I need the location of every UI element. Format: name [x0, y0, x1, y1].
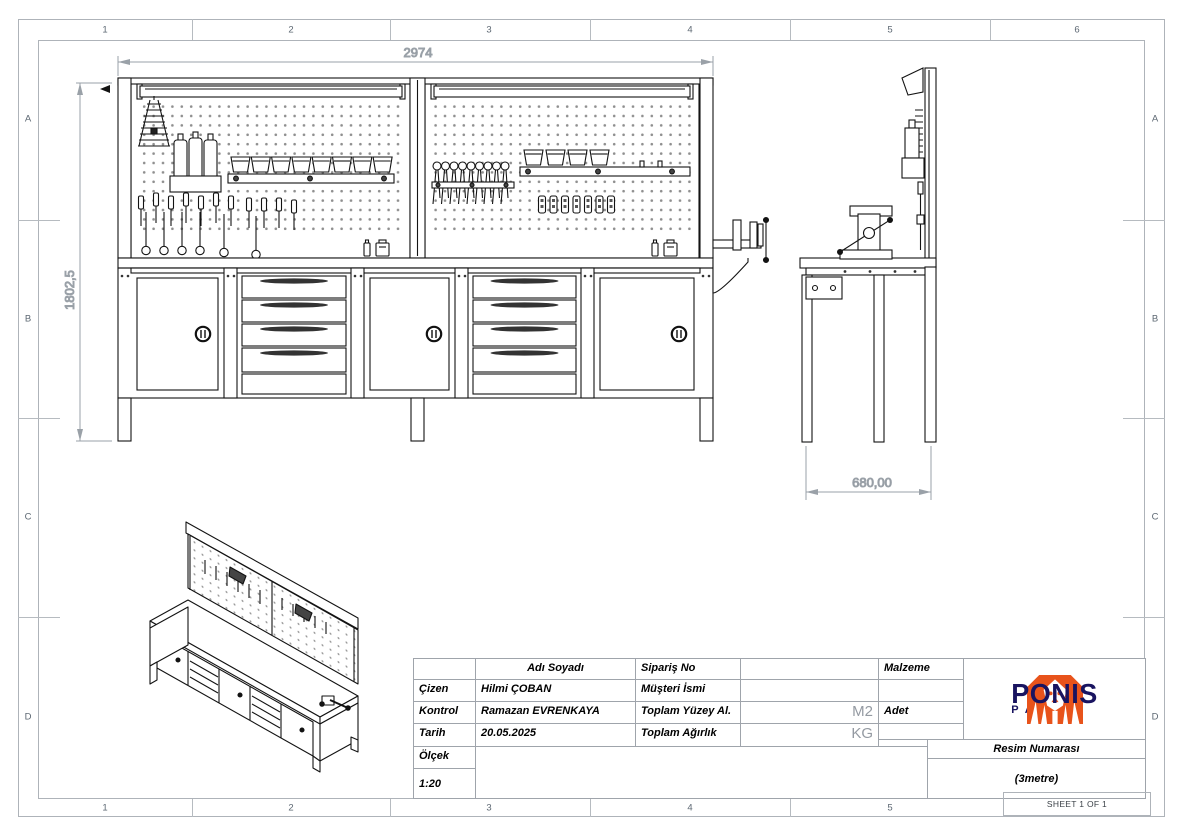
leg	[118, 398, 131, 441]
vise-front	[713, 218, 769, 294]
door-cabinet	[137, 278, 218, 390]
title-cell-yuzey-label: Toplam Yüzey Al.	[635, 701, 741, 724]
front-view-drawing: 2974 1802,5	[60, 35, 800, 505]
sheet-number-box: SHEET 1 OF 1	[1003, 792, 1151, 816]
title-cell-malzeme-value	[878, 679, 964, 702]
side-view-drawing: 680,00	[790, 40, 980, 510]
dimension-height: 1802,5	[62, 83, 112, 441]
zone-label-right-b: B	[1152, 314, 1158, 325]
title-cell-tarih-value: 20.05.2025	[475, 723, 636, 747]
isometric-view-drawing	[130, 515, 430, 815]
zone-divider	[18, 418, 60, 419]
zone-label-right-a: A	[1152, 114, 1158, 125]
svg-text:2974: 2974	[404, 45, 433, 60]
title-cell-cizen-label: Çizen	[413, 679, 476, 702]
zone-divider	[590, 799, 591, 817]
unit-kg: KG	[851, 727, 873, 740]
zone-divider	[18, 220, 60, 221]
title-cell-resim-label: Resim Numarası	[927, 739, 1146, 759]
zone-label-bottom-4: 4	[687, 803, 692, 814]
zone-label-right-c: C	[1152, 512, 1159, 523]
zone-divider	[1123, 617, 1165, 618]
drawer-cabinet	[242, 276, 346, 394]
zone-label-top-2: 2	[288, 25, 293, 36]
cad-drawing-sheet: 1 2 3 4 5 6 1 2 3 4 5 A B C D A B C D	[0, 0, 1187, 839]
title-cell-malzeme: Malzeme	[878, 658, 964, 680]
title-cell-notes	[475, 746, 928, 799]
leg	[874, 275, 884, 442]
leg	[700, 398, 713, 441]
dimension-width: 2974	[118, 45, 713, 76]
svg-text:680,00: 680,00	[852, 475, 892, 490]
title-cell-cizen-value: Hilmi ÇOBAN	[475, 679, 636, 702]
zone-label-top-4: 4	[687, 25, 692, 36]
zone-label-bottom-1: 1	[102, 803, 107, 814]
zone-label-top-5: 5	[887, 25, 892, 36]
zone-label-top-1: 1	[102, 25, 107, 36]
title-cell-yuzey-value: M2	[740, 701, 879, 724]
title-cell-adet: Adet	[878, 701, 964, 724]
light-fixture-left	[137, 84, 405, 99]
side-pegboard-profile	[902, 68, 936, 267]
dimension-depth: 680,00	[806, 446, 931, 500]
title-cell-siparis-value	[740, 658, 879, 680]
bench-base	[118, 258, 713, 441]
iso-workbench	[150, 522, 358, 772]
zone-label-left-a: A	[25, 114, 31, 125]
drawer-cabinet	[473, 276, 576, 394]
zone-label-top-6: 6	[1074, 25, 1079, 36]
light-fixture-right	[431, 84, 693, 99]
title-cell-siparis-label: Sipariş No	[635, 658, 741, 680]
clip-row	[539, 196, 615, 213]
zone-label-bottom-3: 3	[486, 803, 491, 814]
zone-label-top-3: 3	[486, 25, 491, 36]
title-cell-musteri-label: Müşteri İsmi	[635, 679, 741, 702]
leg	[925, 267, 936, 442]
zone-label-left-b: B	[25, 314, 31, 325]
unit-m2: M2	[852, 705, 873, 718]
datum-arrow	[100, 85, 110, 93]
title-cell-musteri-value	[740, 679, 879, 702]
svg-text:1802,5: 1802,5	[62, 270, 77, 310]
title-cell-name-header: Adı Soyadı	[475, 658, 636, 680]
zone-divider	[790, 799, 791, 817]
left-post	[118, 78, 131, 258]
title-cell-olcek-label: Ölçek	[413, 746, 476, 769]
zone-divider	[1123, 418, 1165, 419]
title-cell-olcek-value: 1:20	[413, 768, 476, 799]
spray-bottles-shelf	[170, 132, 221, 192]
zone-divider	[18, 617, 60, 618]
zone-divider	[990, 19, 991, 40]
title-cell-agirlik-value: KG	[740, 723, 879, 747]
company-logo: PONIS PANO	[963, 658, 1146, 740]
zone-label-right-d: D	[1152, 712, 1159, 723]
worktop	[118, 258, 713, 268]
door-cabinet	[370, 278, 449, 390]
title-block: Adı Soyadı Çizen Hilmi ÇOBAN Kontrol Ram…	[413, 658, 1146, 799]
zone-label-bottom-5: 5	[887, 803, 892, 814]
title-cell-blank	[413, 658, 476, 680]
brand-name: PONIS	[1011, 682, 1098, 704]
title-cell-adet-value	[878, 723, 964, 740]
side-bench	[800, 258, 936, 442]
title-cell-tarih-label: Tarih	[413, 723, 476, 747]
title-cell-kontrol-label: Kontrol	[413, 701, 476, 724]
zone-label-left-d: D	[25, 712, 32, 723]
zone-divider	[1123, 220, 1165, 221]
zone-label-left-c: C	[25, 512, 32, 523]
leg	[802, 275, 812, 442]
title-cell-agirlik-label: Toplam Ağırlık	[635, 723, 741, 747]
door-cabinet	[600, 278, 694, 390]
title-cell-kontrol-value: Ramazan EVRENKAYA	[475, 701, 636, 724]
right-post	[700, 78, 713, 258]
vise-side	[837, 206, 893, 259]
leg	[411, 398, 424, 441]
